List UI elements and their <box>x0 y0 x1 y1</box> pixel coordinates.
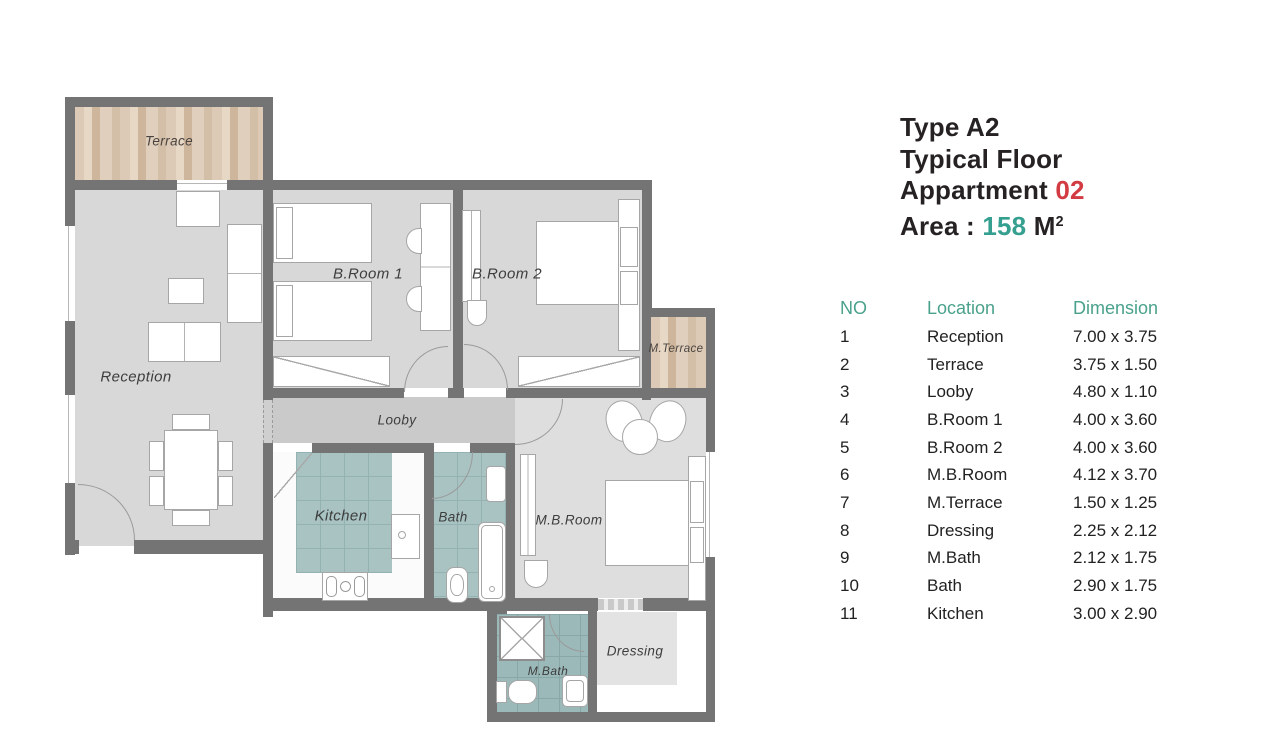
cell-no: 4 <box>840 410 927 430</box>
wall <box>134 540 272 554</box>
table-row: 10 Bath 2.90 x 1.75 <box>840 572 1205 600</box>
wall <box>506 388 714 398</box>
wall <box>263 598 598 611</box>
cell-dimension: 3.75 x 1.50 <box>1073 355 1205 375</box>
table-row: 11 Kitchen 3.00 x 2.90 <box>840 600 1205 628</box>
coffee-table <box>168 278 204 304</box>
dining-table <box>164 430 218 510</box>
pillow <box>620 271 638 305</box>
cell-no: 2 <box>840 355 927 375</box>
sink <box>486 466 506 502</box>
area-unit-sup: 2 <box>1056 214 1064 230</box>
table-row: 8 Dressing 2.25 x 2.12 <box>840 517 1205 545</box>
cell-dimension: 4.00 x 3.60 <box>1073 438 1205 458</box>
chair <box>172 414 210 430</box>
wardrobe <box>518 356 640 387</box>
room-label-reception: Reception <box>100 369 171 386</box>
cell-no: 1 <box>840 327 927 347</box>
wall <box>448 388 464 398</box>
window <box>65 395 75 483</box>
sink-basin <box>566 680 584 702</box>
burner-icon <box>326 576 337 597</box>
chair <box>218 441 233 471</box>
double-bed <box>536 221 619 305</box>
dressing-sliding-door <box>598 599 643 610</box>
stove-burners <box>324 576 366 597</box>
apartment-label: Appartment <box>900 175 1048 205</box>
area-value: 158 <box>982 211 1026 241</box>
cell-no: 10 <box>840 576 927 596</box>
door-leaf <box>274 453 312 498</box>
chair <box>149 476 164 506</box>
wall <box>65 540 79 554</box>
cell-location: Bath <box>927 576 1073 596</box>
chair <box>149 441 164 471</box>
chair <box>467 300 487 326</box>
wall <box>65 97 272 107</box>
cell-location: Kitchen <box>927 604 1073 624</box>
burner-icon <box>354 576 365 597</box>
title-area: Area : 158 M2 <box>900 207 1085 243</box>
wall <box>642 180 652 317</box>
cell-location: Terrace <box>927 355 1073 375</box>
desk <box>462 210 481 302</box>
room-label-looby: Looby <box>378 413 417 428</box>
cell-dimension: 2.12 x 1.75 <box>1073 548 1205 568</box>
shower-cross <box>501 618 543 659</box>
cell-location: M.Terrace <box>927 493 1073 513</box>
cell-dimension: 3.00 x 2.90 <box>1073 604 1205 624</box>
room-label-mterrace: M.Terrace <box>649 343 704 355</box>
cell-no: 9 <box>840 548 927 568</box>
title-apartment: Appartment 02 <box>900 175 1085 207</box>
cell-no: 7 <box>840 493 927 513</box>
cell-location: B.Room 2 <box>927 438 1073 458</box>
wardrobe <box>273 356 390 387</box>
floor-plan-page: Terrace Reception B.Room 1 B.Room 2 M.Te… <box>0 0 1280 748</box>
cell-dimension: 7.00 x 3.75 <box>1073 327 1205 347</box>
faucet <box>398 531 406 539</box>
floor-plan: Terrace Reception B.Room 1 B.Room 2 M.Te… <box>0 0 740 748</box>
table-row: 5 B.Room 2 4.00 x 3.60 <box>840 434 1205 462</box>
table-row: 6 M.B.Room 4.12 x 3.70 <box>840 461 1205 489</box>
header-dimension: Dimension <box>1073 298 1205 319</box>
cell-location: M.Bath <box>927 548 1073 568</box>
title-block: Type A2 Typical Floor Appartment 02 Area… <box>900 112 1085 242</box>
apartment-number: 02 <box>1055 175 1084 205</box>
pillow <box>690 481 704 523</box>
cell-dimension: 2.25 x 2.12 <box>1073 521 1205 541</box>
chair <box>172 510 210 526</box>
drain <box>489 586 495 592</box>
table-row: 3 Looby 4.80 x 1.10 <box>840 378 1205 406</box>
title-floor: Typical Floor <box>900 144 1085 176</box>
cell-dimension: 2.90 x 1.75 <box>1073 576 1205 596</box>
stool <box>524 560 548 588</box>
double-bed <box>605 480 689 566</box>
table-row: 2 Terrace 3.75 x 1.50 <box>840 351 1205 379</box>
pillow <box>620 227 638 267</box>
wall <box>263 443 273 453</box>
wall <box>272 388 404 398</box>
wall <box>263 97 273 617</box>
toilet <box>508 680 537 704</box>
room-label-broom1: B.Room 1 <box>333 266 403 283</box>
cell-location: M.B.Room <box>927 465 1073 485</box>
cell-no: 6 <box>840 465 927 485</box>
burner-icon <box>340 581 351 592</box>
cell-dimension: 1.50 x 1.25 <box>1073 493 1205 513</box>
room-label-bath: Bath <box>438 510 467 525</box>
cell-no: 11 <box>840 604 927 624</box>
table-header-row: NO Location Dimension <box>840 293 1205 323</box>
desk <box>420 203 451 331</box>
window <box>65 226 75 321</box>
armchair <box>176 191 220 227</box>
title-type: Type A2 <box>900 112 1085 144</box>
chair <box>218 476 233 506</box>
window <box>706 452 715 557</box>
reception-looby-opening <box>263 400 273 443</box>
area-unit: M <box>1034 211 1056 241</box>
round-table <box>622 419 658 455</box>
cell-dimension: 4.00 x 3.60 <box>1073 410 1205 430</box>
cell-location: Looby <box>927 382 1073 402</box>
header-no: NO <box>840 298 927 319</box>
window <box>177 180 227 190</box>
table-row: 7 M.Terrace 1.50 x 1.25 <box>840 489 1205 517</box>
cell-dimension: 4.80 x 1.10 <box>1073 382 1205 402</box>
table-row: 4 B.Room 1 4.00 x 3.60 <box>840 406 1205 434</box>
wall <box>642 308 714 317</box>
wall <box>588 610 597 712</box>
cell-no: 5 <box>840 438 927 458</box>
table-row: 1 Reception 7.00 x 3.75 <box>840 323 1205 351</box>
room-label-terrace: Terrace <box>145 134 193 149</box>
cell-no: 3 <box>840 382 927 402</box>
sofa <box>227 224 262 323</box>
room-label-mbath: M.Bath <box>528 664 568 678</box>
cell-location: Reception <box>927 327 1073 347</box>
pillow <box>276 207 293 259</box>
pillow <box>690 527 704 563</box>
pillow <box>276 285 293 337</box>
cell-dimension: 4.12 x 3.70 <box>1073 465 1205 485</box>
header-location: Location <box>927 298 1073 319</box>
room-label-kitchen: Kitchen <box>315 508 368 525</box>
toilet-seat <box>450 574 464 596</box>
mbroom-door-opening <box>506 398 515 443</box>
wall <box>487 601 497 722</box>
cell-no: 8 <box>840 521 927 541</box>
cell-location: Dressing <box>927 521 1073 541</box>
wall <box>65 180 650 190</box>
wall <box>506 443 515 601</box>
room-label-broom2: B.Room 2 <box>472 266 542 283</box>
room-label-mbroom: M.B.Room <box>536 513 603 528</box>
sofa <box>148 322 221 362</box>
wall <box>312 443 430 453</box>
toilet-tank <box>496 681 507 703</box>
area-label: Area : <box>900 211 975 241</box>
cell-location: B.Room 1 <box>927 410 1073 430</box>
dimensions-table: NO Location Dimension 1 Reception 7.00 x… <box>840 293 1205 628</box>
table-row: 9 M.Bath 2.12 x 1.75 <box>840 545 1205 573</box>
wall <box>487 712 714 722</box>
wall <box>65 97 75 555</box>
wardrobe <box>520 454 536 556</box>
room-label-dressing: Dressing <box>607 644 663 659</box>
